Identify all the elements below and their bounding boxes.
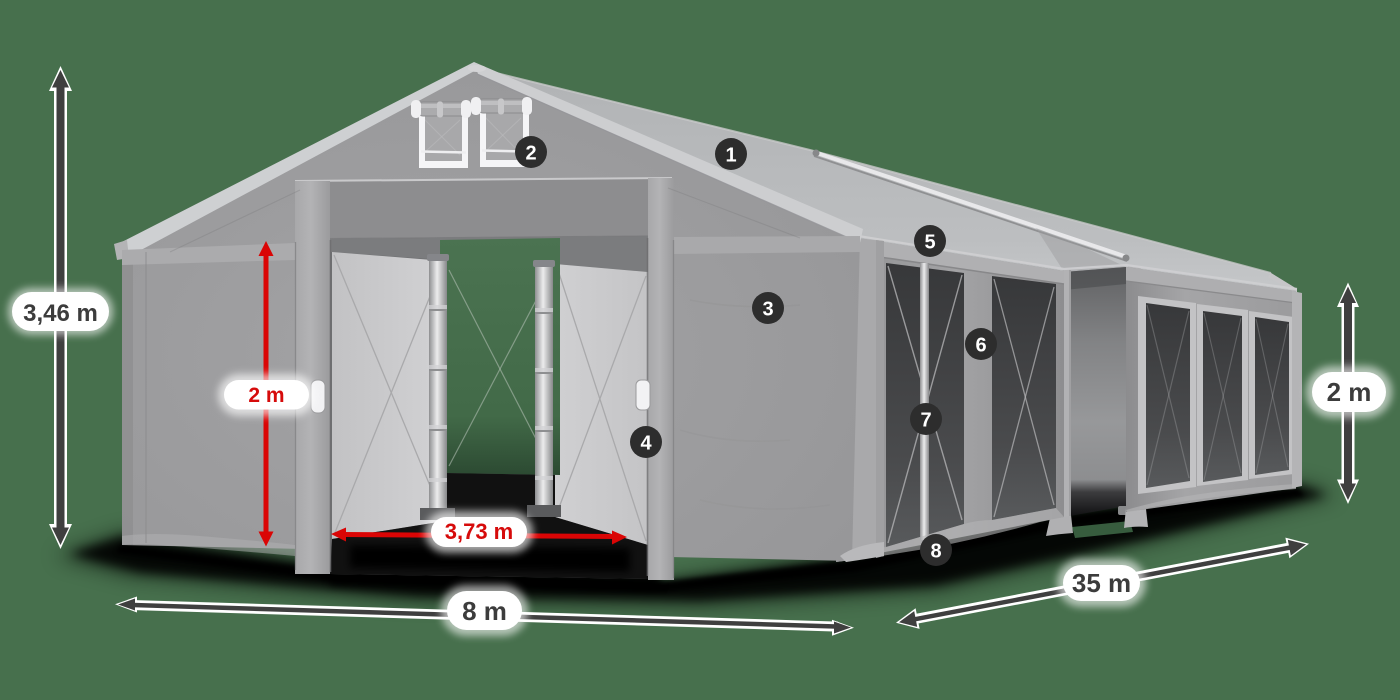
svg-text:35 m: 35 m [1072, 568, 1131, 598]
svg-text:4: 4 [640, 433, 652, 455]
svg-text:3,46 m: 3,46 m [23, 300, 98, 327]
svg-text:8 m: 8 m [462, 596, 507, 626]
svg-text:8: 8 [930, 541, 941, 563]
svg-text:1: 1 [725, 145, 736, 167]
svg-text:2 m: 2 m [248, 384, 284, 407]
svg-text:5: 5 [924, 232, 935, 254]
svg-text:3: 3 [762, 299, 773, 321]
svg-text:7: 7 [920, 410, 931, 432]
svg-text:3,73 m: 3,73 m [445, 519, 514, 544]
svg-text:2 m: 2 m [1327, 377, 1372, 407]
svg-text:6: 6 [975, 335, 986, 357]
svg-text:2: 2 [525, 143, 536, 165]
